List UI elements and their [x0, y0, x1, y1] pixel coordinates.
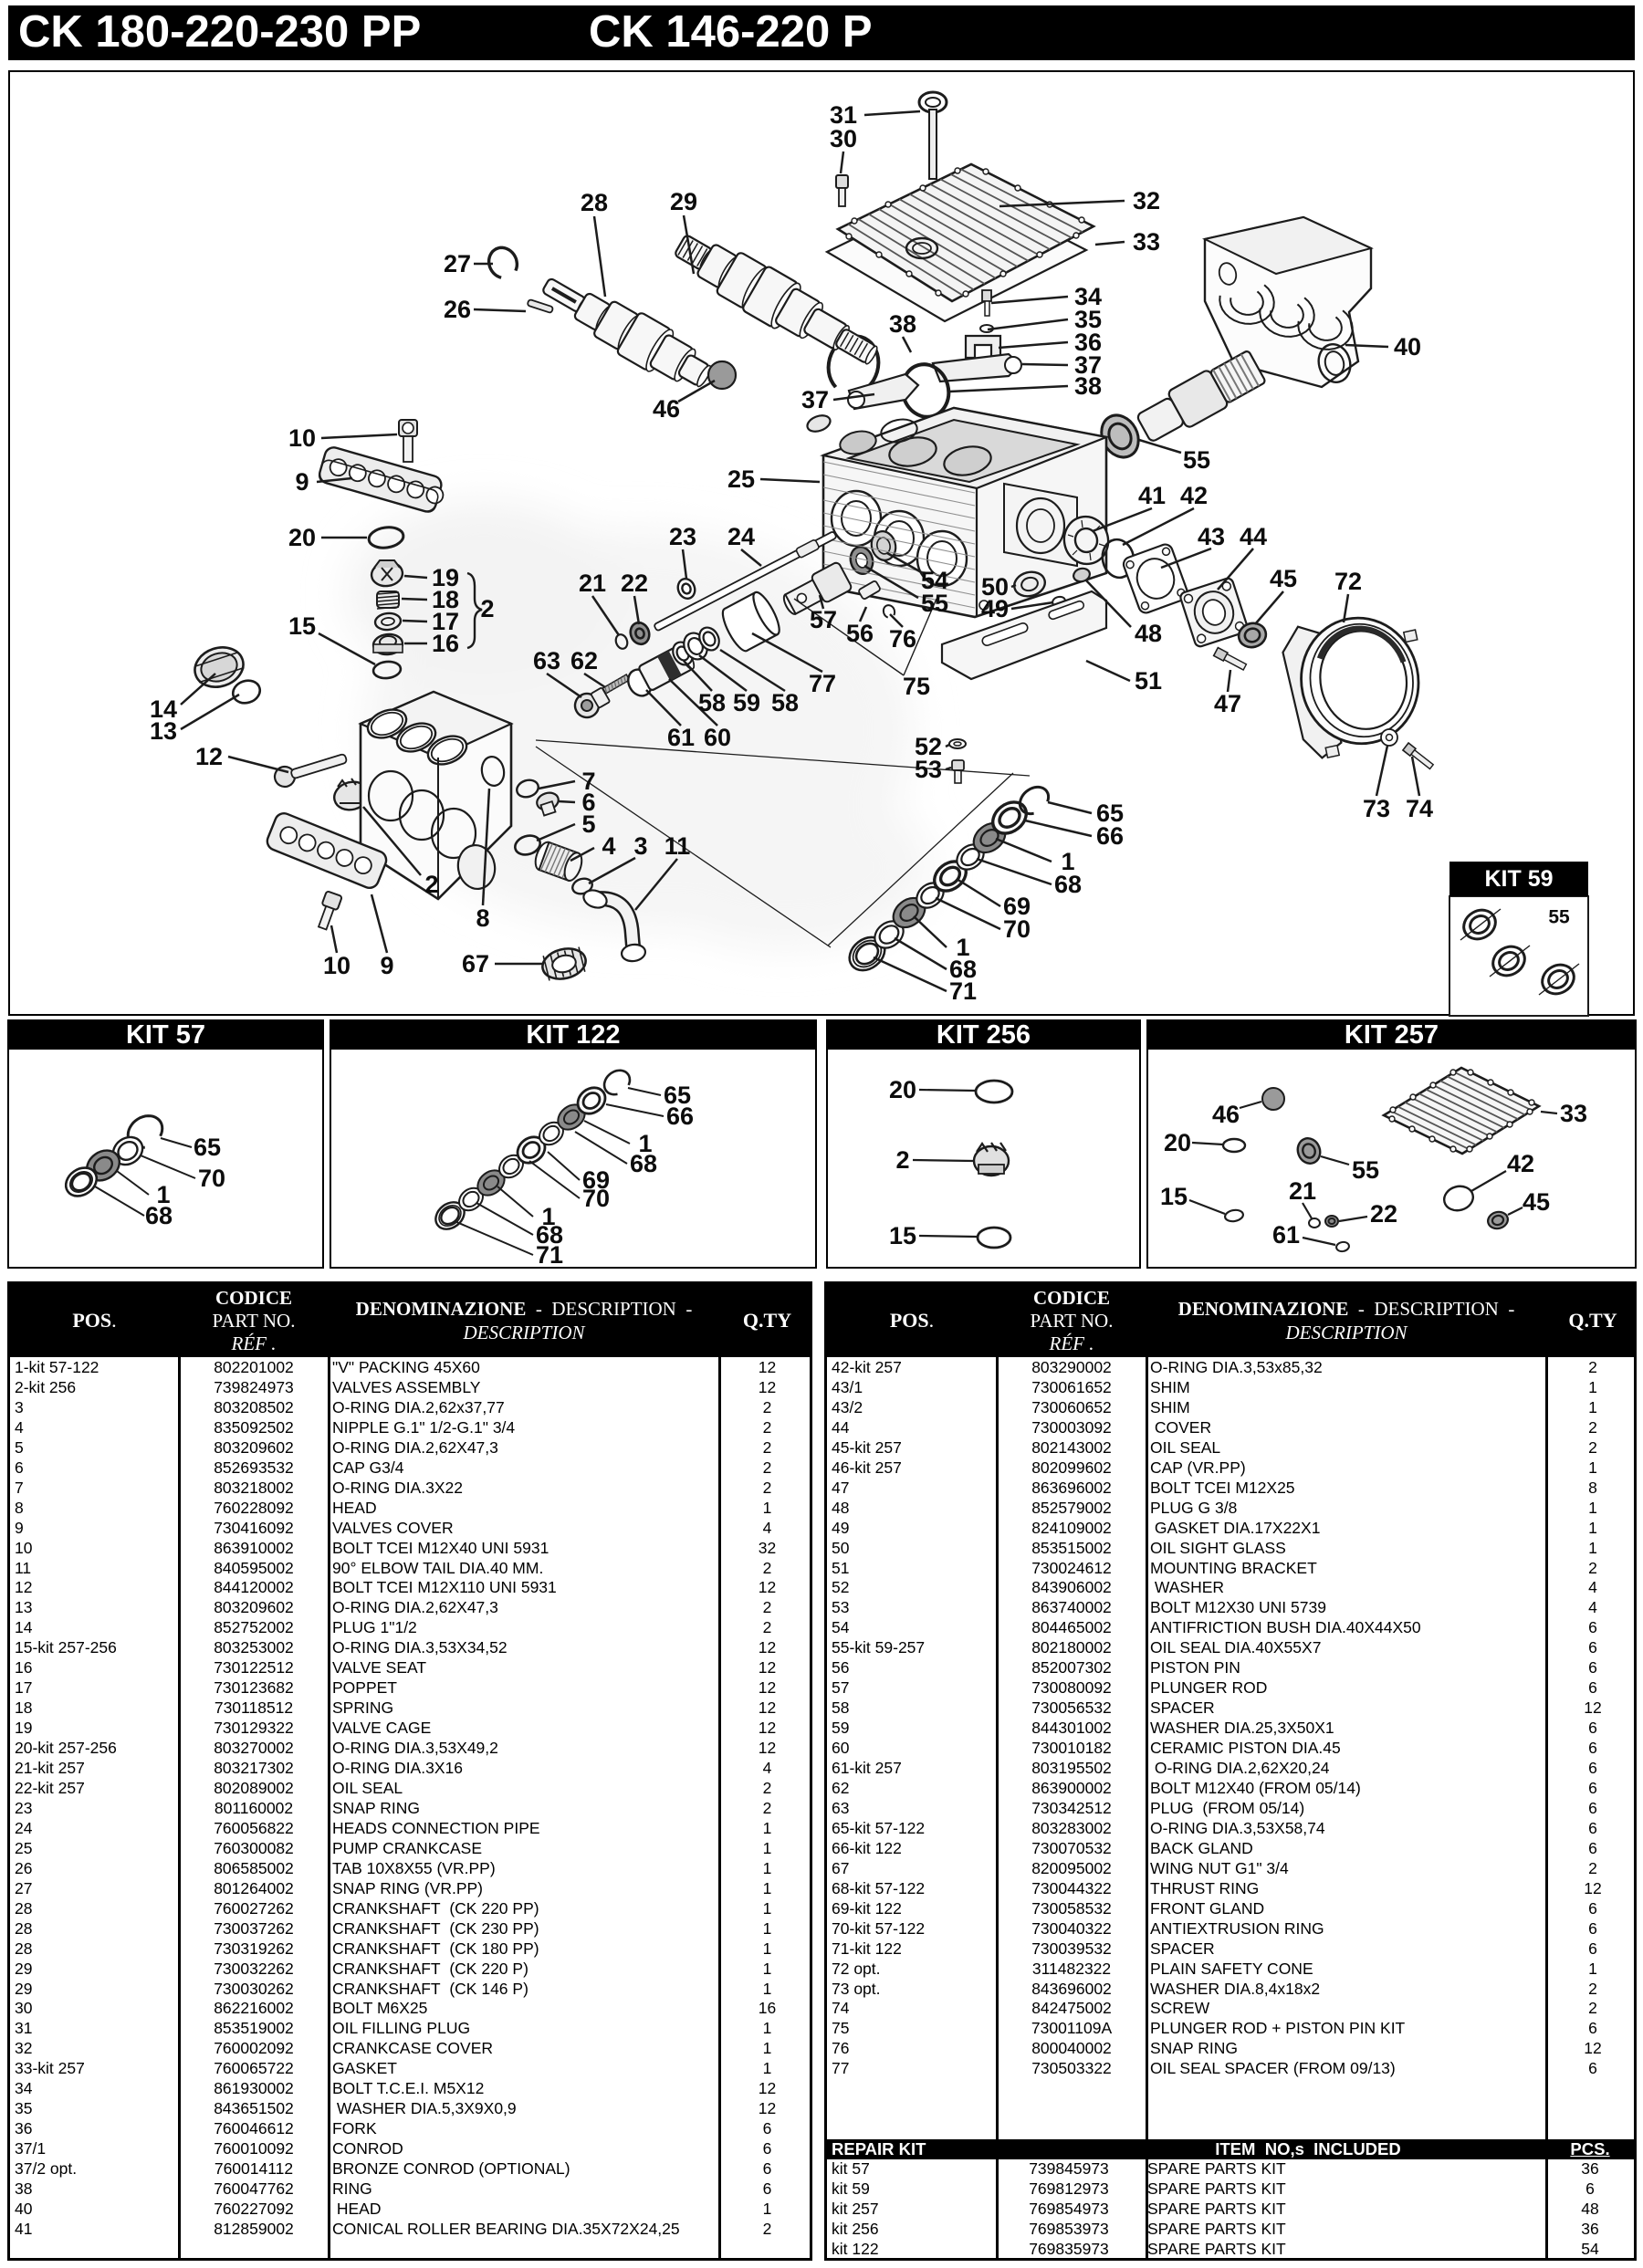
- svg-text:67: 67: [462, 950, 489, 977]
- svg-text:60: 60: [704, 724, 731, 751]
- svg-text:46: 46: [653, 395, 680, 423]
- svg-text:38: 38: [1074, 372, 1102, 400]
- svg-text:8: 8: [476, 904, 489, 932]
- svg-text:24: 24: [727, 523, 755, 550]
- svg-text:15: 15: [889, 1222, 916, 1249]
- svg-text:26: 26: [444, 296, 471, 323]
- svg-text:65: 65: [194, 1134, 221, 1161]
- svg-text:61: 61: [667, 724, 695, 751]
- svg-text:70: 70: [582, 1185, 610, 1212]
- svg-text:66: 66: [1096, 822, 1124, 850]
- svg-text:68: 68: [1054, 871, 1082, 898]
- svg-text:45: 45: [1270, 565, 1297, 592]
- svg-text:15: 15: [1160, 1183, 1188, 1210]
- svg-text:53: 53: [915, 756, 942, 783]
- svg-text:32: 32: [1133, 187, 1160, 214]
- svg-text:20: 20: [288, 524, 316, 551]
- svg-text:25: 25: [727, 465, 755, 493]
- svg-text:33: 33: [1133, 228, 1160, 256]
- svg-text:22: 22: [1370, 1200, 1397, 1228]
- svg-text:40: 40: [1394, 333, 1421, 361]
- svg-text:56: 56: [846, 620, 874, 647]
- svg-text:70: 70: [1003, 915, 1031, 943]
- svg-text:30: 30: [830, 125, 857, 152]
- svg-text:46: 46: [1212, 1101, 1240, 1128]
- svg-text:10: 10: [288, 424, 316, 452]
- svg-text:4: 4: [602, 832, 615, 860]
- svg-text:51: 51: [1135, 667, 1162, 695]
- svg-text:10: 10: [323, 952, 351, 979]
- svg-text:42: 42: [1180, 482, 1208, 509]
- svg-text:71: 71: [536, 1241, 563, 1269]
- svg-text:55: 55: [1183, 446, 1210, 474]
- svg-text:2: 2: [895, 1146, 909, 1174]
- svg-text:59: 59: [733, 689, 760, 716]
- svg-text:3: 3: [633, 832, 647, 860]
- svg-text:55: 55: [1548, 907, 1570, 928]
- svg-text:71: 71: [949, 977, 977, 1005]
- svg-text:70: 70: [198, 1165, 225, 1192]
- svg-text:9: 9: [295, 468, 309, 496]
- svg-text:23: 23: [669, 523, 696, 550]
- svg-text:68: 68: [145, 1202, 173, 1229]
- svg-text:55: 55: [921, 590, 948, 617]
- svg-text:22: 22: [621, 570, 648, 597]
- svg-text:72: 72: [1334, 568, 1362, 595]
- svg-text:49: 49: [981, 595, 1009, 622]
- svg-text:63: 63: [533, 647, 560, 674]
- svg-text:9: 9: [380, 952, 393, 979]
- svg-text:47: 47: [1214, 690, 1241, 717]
- svg-text:15: 15: [288, 612, 316, 640]
- svg-text:21: 21: [579, 570, 606, 597]
- svg-text:55: 55: [1352, 1156, 1379, 1184]
- svg-text:74: 74: [1406, 795, 1433, 822]
- svg-text:61: 61: [1272, 1221, 1300, 1249]
- svg-text:33: 33: [1560, 1100, 1587, 1127]
- svg-text:29: 29: [670, 188, 697, 215]
- svg-text:38: 38: [889, 310, 916, 338]
- svg-text:KIT 59: KIT 59: [1484, 866, 1553, 892]
- svg-text:16: 16: [432, 630, 459, 657]
- svg-text:75: 75: [903, 673, 930, 700]
- svg-text:48: 48: [1135, 620, 1162, 647]
- svg-text:20: 20: [1164, 1129, 1191, 1156]
- svg-text:45: 45: [1523, 1188, 1550, 1216]
- svg-text:28: 28: [581, 189, 608, 216]
- svg-text:2: 2: [480, 595, 494, 622]
- svg-text:2: 2: [424, 871, 438, 898]
- svg-text:68: 68: [630, 1150, 657, 1177]
- svg-text:11: 11: [665, 832, 691, 860]
- svg-text:12: 12: [195, 743, 223, 770]
- svg-text:27: 27: [444, 250, 471, 277]
- svg-text:13: 13: [150, 717, 177, 745]
- svg-text:58: 58: [698, 689, 726, 716]
- svg-text:77: 77: [809, 670, 836, 697]
- svg-text:20: 20: [889, 1076, 916, 1103]
- svg-text:41: 41: [1138, 482, 1166, 509]
- svg-text:57: 57: [810, 606, 837, 633]
- svg-text:21: 21: [1289, 1177, 1316, 1205]
- svg-text:43: 43: [1198, 523, 1225, 550]
- svg-text:62: 62: [570, 647, 598, 674]
- svg-text:44: 44: [1240, 523, 1267, 550]
- svg-text:66: 66: [666, 1103, 694, 1130]
- svg-text:58: 58: [771, 689, 799, 716]
- svg-text:73: 73: [1363, 795, 1390, 822]
- svg-text:37: 37: [801, 386, 829, 413]
- svg-text:76: 76: [889, 625, 916, 653]
- svg-text:42: 42: [1507, 1150, 1534, 1177]
- svg-text:5: 5: [581, 810, 595, 838]
